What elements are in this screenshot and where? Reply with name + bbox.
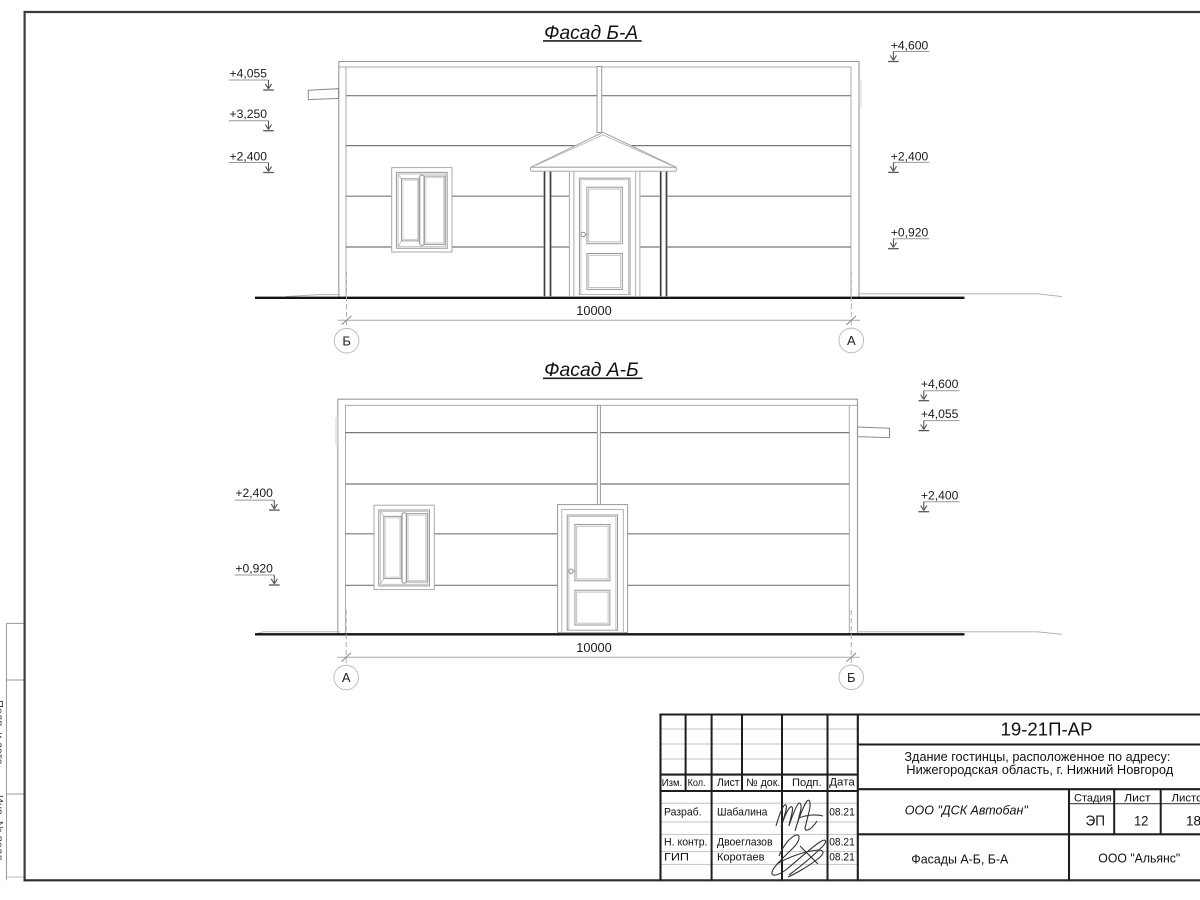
- svg-text:Разраб.: Разраб.: [664, 807, 702, 819]
- svg-text:Лист: Лист: [717, 777, 740, 789]
- svg-text:+2,400: +2,400: [921, 489, 959, 503]
- svg-text:Двоеглазов: Двоеглазов: [717, 837, 773, 849]
- svg-text:+4,055: +4,055: [230, 67, 268, 81]
- svg-text:+0,920: +0,920: [235, 561, 273, 575]
- svg-text:Стадия: Стадия: [1074, 792, 1112, 804]
- svg-text:+0,920: +0,920: [891, 225, 929, 239]
- svg-text:+3,250: +3,250: [230, 107, 268, 121]
- svg-text:Н. контр.: Н. контр.: [664, 837, 708, 849]
- svg-text:+2,400: +2,400: [230, 149, 268, 163]
- svg-text:+4,600: +4,600: [921, 377, 959, 391]
- svg-text:Б: Б: [342, 333, 351, 348]
- svg-text:Коротаев: Коротаев: [717, 852, 765, 864]
- svg-text:А: А: [847, 333, 856, 348]
- svg-text:10000: 10000: [576, 640, 612, 655]
- svg-text:А: А: [342, 670, 351, 685]
- svg-text:ООО "Альянс": ООО "Альянс": [1098, 852, 1180, 866]
- svg-text:+4,055: +4,055: [921, 407, 959, 421]
- svg-text:+4,600: +4,600: [891, 38, 929, 52]
- svg-text:08.21: 08.21: [829, 807, 855, 819]
- svg-text:08.21: 08.21: [829, 837, 855, 849]
- svg-text:12: 12: [1134, 814, 1148, 830]
- svg-text:ГИП: ГИП: [664, 852, 689, 864]
- svg-text:Подп. и дата: Подп. и дата: [0, 700, 5, 766]
- svg-text:Нижегородская область, г. Нижн: Нижегородская область, г. Нижний Новгоро…: [906, 762, 1174, 777]
- svg-text:10000: 10000: [576, 303, 612, 318]
- svg-text:Б: Б: [847, 670, 856, 685]
- svg-text:Шабалина: Шабалина: [717, 807, 768, 819]
- svg-text:+2,400: +2,400: [891, 149, 929, 163]
- svg-text:ЭП: ЭП: [1085, 814, 1105, 830]
- svg-text:Лист: Лист: [1124, 792, 1151, 804]
- svg-text:18: 18: [1186, 814, 1200, 830]
- svg-text:ООО "ДСК Автобан": ООО "ДСК Автобан": [905, 802, 1029, 817]
- svg-text:Листов: Листов: [1172, 792, 1200, 804]
- svg-text:№ док.: № док.: [746, 777, 780, 789]
- svg-text:Изм.: Изм.: [662, 777, 683, 789]
- svg-text:Инв. № подл.: Инв. № подл.: [0, 795, 5, 864]
- svg-text:+2,400: +2,400: [235, 486, 273, 500]
- svg-text:19-21П-АР: 19-21П-АР: [1001, 719, 1093, 739]
- svg-text:Дата: Дата: [829, 777, 855, 789]
- svg-text:Подп.: Подп.: [792, 777, 822, 789]
- svg-text:Фасады А-Б, Б-А: Фасады А-Б, Б-А: [911, 853, 1009, 867]
- svg-text:08.21: 08.21: [829, 852, 855, 864]
- svg-text:Кол.: Кол.: [688, 777, 706, 789]
